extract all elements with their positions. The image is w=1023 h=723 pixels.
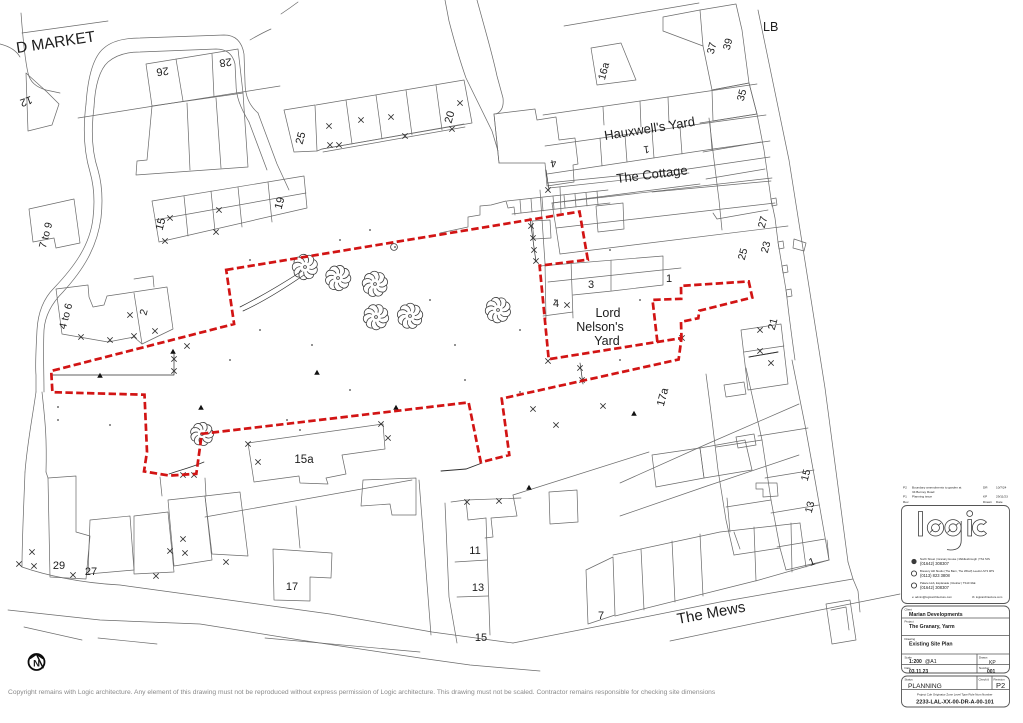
svg-text:The Cottage: The Cottage [616,162,689,186]
svg-text:29/11/23: 29/11/23 [996,495,1008,499]
svg-text:37: 37 [705,41,720,56]
svg-text:17: 17 [286,581,298,593]
svg-text:P1: P1 [903,495,907,499]
svg-text:21: 21 [766,317,781,332]
svg-text:Date: Date [996,500,1003,504]
svg-text:e: admin@logicarchitecture.com: e: admin@logicarchitecture.com [912,595,953,599]
svg-text:PLANNING: PLANNING [908,683,942,690]
svg-text:(0113) 823 3808: (0113) 823 3808 [920,573,950,578]
svg-text:Drawing: Drawing [905,637,916,641]
svg-text:The Granary, Yarm: The Granary, Yarm [909,624,955,630]
svg-text:16a: 16a [596,61,612,81]
svg-text:P2: P2 [903,486,907,490]
svg-text:Drawn: Drawn [983,500,992,504]
svg-text:Project: Project [905,620,914,624]
svg-text:15: 15 [154,217,169,232]
svg-text:Lord: Lord [595,306,620,320]
svg-text:DR: DR [983,486,988,490]
svg-text:2: 2 [138,308,151,317]
svg-text:28: 28 [219,55,233,69]
svg-text:12: 12 [18,93,34,108]
svg-text:29: 29 [53,560,65,572]
svg-text:10/7/24: 10/7/24 [996,486,1007,490]
svg-text:Project Cde Originator Zon: Project Cde Originator Zone Level Type R… [917,693,992,697]
svg-text:KP: KP [983,495,987,499]
svg-text:13: 13 [472,582,484,594]
svg-text:13: 13 [803,500,818,515]
svg-text:(01642) 308307: (01642) 308307 [920,561,950,566]
svg-text:19: 19 [273,196,288,211]
svg-text:Hauxwell's Yard: Hauxwell's Yard [603,114,696,143]
svg-text:03.11.23: 03.11.23 [909,669,928,675]
svg-text:39: 39 [721,37,736,52]
svg-text:001: 001 [987,669,996,675]
svg-text:34 Berney Road: 34 Berney Road [912,490,935,494]
svg-text:Marian Developments: Marian Developments [909,612,963,618]
svg-text:1: 1 [666,273,672,285]
svg-text:3: 3 [588,279,594,291]
svg-text:26: 26 [156,64,170,78]
svg-text:7: 7 [598,610,604,622]
svg-text:N: N [33,659,40,670]
svg-text:35: 35 [735,88,750,103]
svg-text:1:200: 1:200 [909,659,922,665]
svg-text:@A1: @A1 [925,659,937,665]
svg-text:Existing Site Plan: Existing Site Plan [909,642,953,648]
svg-text:P2: P2 [996,681,1005,690]
svg-text:th: logicarchitecture.com: th: logicarchitecture.com [972,595,1003,599]
svg-text:15: 15 [475,632,487,644]
svg-text:7 to 9: 7 to 9 [37,221,55,250]
svg-text:Client: Client [905,608,913,612]
svg-text:25: 25 [294,131,309,146]
svg-text:4: 4 [550,157,558,170]
svg-text:1: 1 [643,143,651,156]
svg-text:KP: KP [989,660,996,666]
svg-text:15a: 15a [294,454,314,466]
svg-text:Planning issue: Planning issue [912,495,932,499]
svg-text:17a: 17a [655,386,672,408]
svg-text:Rev: Rev [903,500,909,504]
svg-text:Nelson's: Nelson's [576,320,624,334]
svg-text:2233-LAL-XX-00-DR-A-00-101: 2233-LAL-XX-00-DR-A-00-101 [916,700,994,706]
svg-text:The Mews: The Mews [676,599,747,628]
svg-text:(01642) 308307: (01642) 308307 [920,585,950,590]
svg-text:11: 11 [469,545,480,557]
svg-text:23: 23 [759,240,774,255]
svg-text:Check'd: Check'd [979,678,990,682]
svg-text:Status: Status [905,678,914,682]
svg-text:27: 27 [756,215,771,230]
svg-text:Yard: Yard [594,334,620,348]
svg-text:20: 20 [443,110,458,125]
svg-text:15: 15 [799,468,814,483]
svg-text:4 to 6: 4 to 6 [57,302,75,331]
svg-text:25: 25 [736,247,751,262]
svg-text:27: 27 [85,566,97,578]
svg-text:4: 4 [553,298,559,310]
svg-text:Drawn: Drawn [979,656,988,660]
svg-text:LB: LB [763,20,778,34]
svg-text:1: 1 [807,555,817,568]
